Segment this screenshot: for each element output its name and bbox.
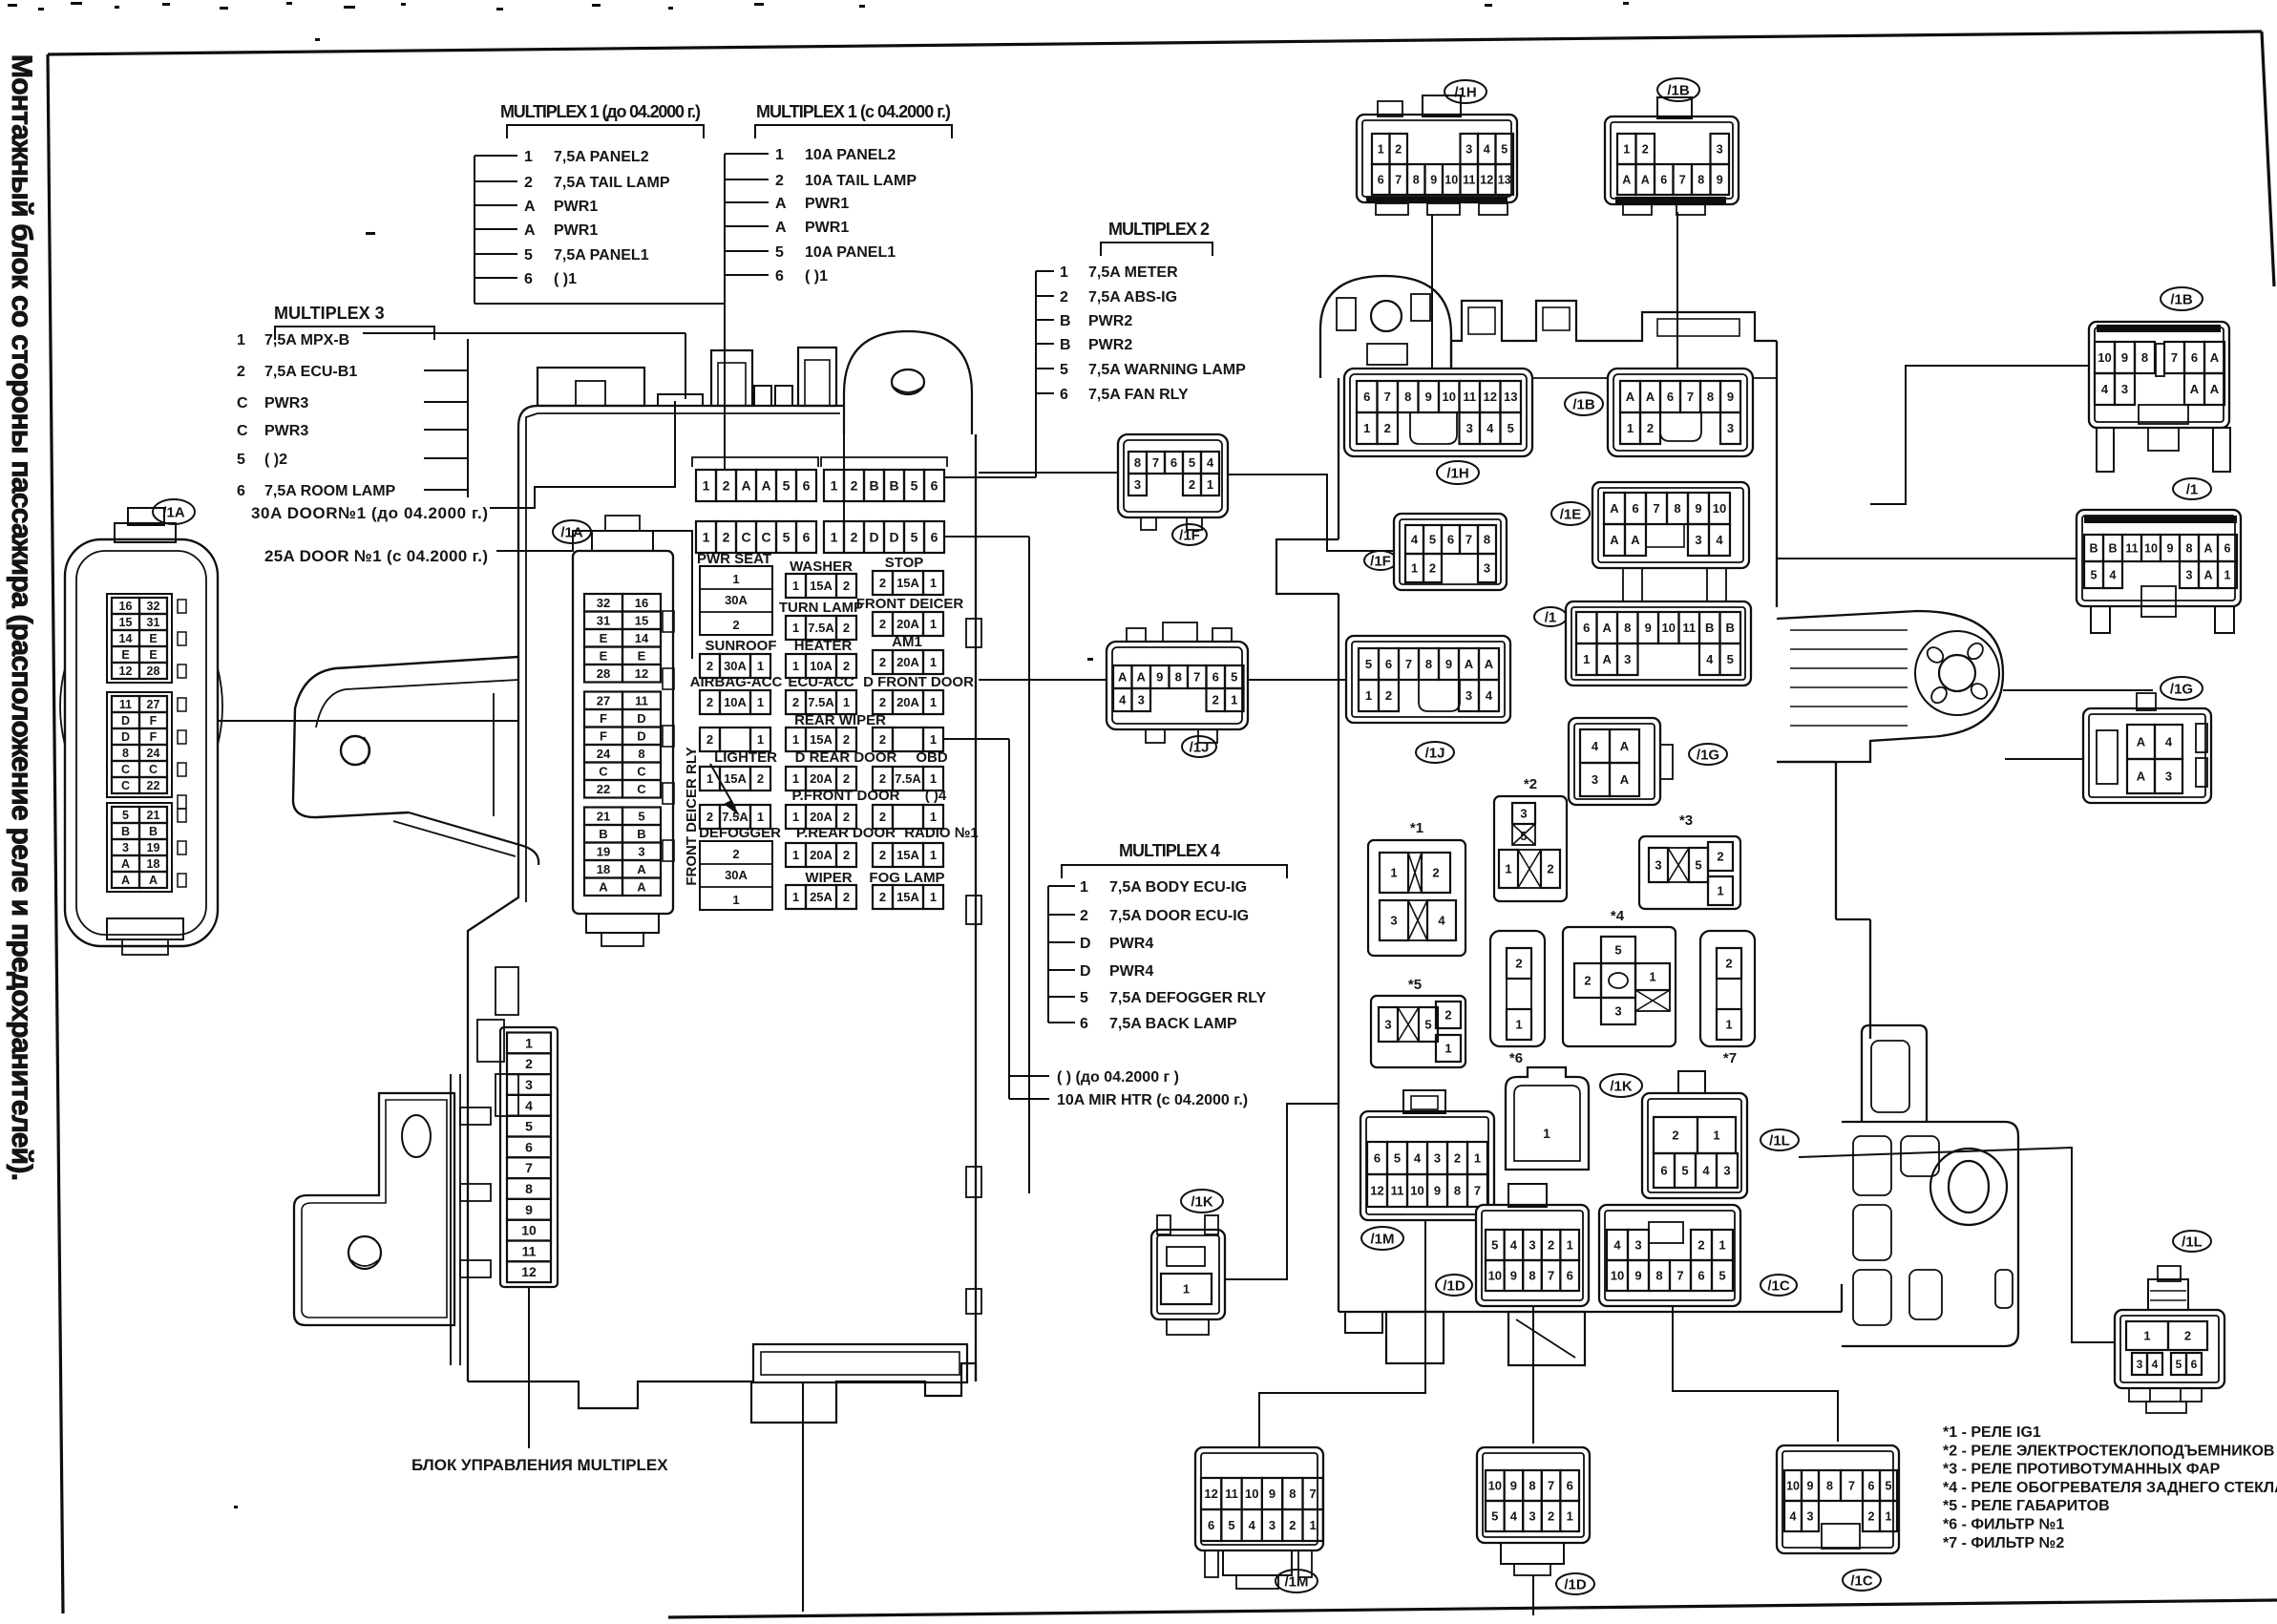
svg-text:7: 7	[1653, 501, 1659, 516]
svg-text:D: D	[637, 728, 645, 743]
svg-text:4: 4	[1510, 1238, 1518, 1253]
svg-text:2: 2	[879, 732, 886, 747]
svg-text:18: 18	[147, 857, 160, 871]
svg-text:БЛОК УПРАВЛЕНИЯ MULTIPLEX: БЛОК УПРАВЛЕНИЯ MULTIPLEX	[411, 1456, 668, 1474]
svg-text:2: 2	[1717, 850, 1723, 864]
svg-text:3: 3	[1614, 1004, 1621, 1019]
svg-text:7: 7	[1384, 390, 1391, 404]
svg-text:2: 2	[879, 655, 886, 669]
svg-text:7: 7	[1465, 533, 1472, 547]
svg-text:8: 8	[2186, 542, 2193, 556]
svg-text:/1A: /1A	[560, 524, 583, 540]
svg-text:8: 8	[1134, 455, 1141, 470]
svg-text:2: 2	[1289, 1518, 1296, 1532]
svg-text:20A: 20A	[810, 810, 833, 824]
svg-text:9: 9	[1717, 174, 1723, 187]
svg-text:/1H: /1H	[1454, 84, 1476, 100]
svg-text:RADIO №1: RADIO №1	[904, 825, 979, 841]
svg-text:5: 5	[1681, 1164, 1688, 1178]
svg-text:8: 8	[1707, 390, 1714, 404]
svg-text:1: 1	[831, 478, 838, 494]
svg-text:1: 1	[1718, 1238, 1725, 1253]
svg-text:8: 8	[1454, 1184, 1461, 1198]
svg-text:2: 2	[843, 659, 850, 673]
svg-text:10: 10	[1488, 1269, 1502, 1283]
svg-text:9: 9	[1645, 621, 1652, 635]
svg-text:1: 1	[930, 617, 937, 631]
svg-text:12: 12	[635, 666, 648, 681]
svg-text:1: 1	[831, 530, 838, 545]
svg-text:7,5A DEFOGGER RLY: 7,5A DEFOGGER RLY	[1109, 990, 1267, 1006]
svg-text:A: A	[1631, 533, 1640, 547]
svg-text:E: E	[121, 648, 129, 662]
svg-text:PWR1: PWR1	[805, 220, 849, 236]
svg-text:8: 8	[638, 747, 644, 761]
svg-text:2: 2	[723, 478, 730, 494]
svg-text:A: A	[2190, 382, 2200, 396]
svg-text:A: A	[1620, 772, 1630, 787]
svg-text:5: 5	[783, 478, 791, 494]
svg-text:20A: 20A	[810, 848, 833, 862]
svg-text:7,5A PANEL1: 7,5A PANEL1	[554, 247, 649, 264]
svg-text:4: 4	[1510, 1509, 1518, 1524]
svg-text:D: D	[121, 730, 130, 744]
svg-text:/1M: /1M	[1370, 1231, 1394, 1247]
svg-text:4: 4	[1119, 693, 1127, 707]
svg-text:7,5A MPX-B: 7,5A MPX-B	[264, 332, 349, 348]
svg-text:2: 2	[1060, 289, 1068, 306]
svg-text:A: A	[599, 879, 608, 894]
svg-text:10: 10	[1662, 621, 1676, 635]
svg-text:1: 1	[792, 771, 799, 786]
svg-text:11: 11	[119, 698, 132, 711]
svg-text:15A: 15A	[724, 771, 747, 786]
svg-text:/1M: /1M	[1284, 1573, 1308, 1590]
svg-text:5: 5	[1424, 1018, 1431, 1032]
svg-text:10: 10	[1444, 174, 1458, 187]
svg-text:P.REAR DOOR: P.REAR DOOR	[796, 825, 896, 841]
svg-text:1: 1	[525, 1035, 533, 1050]
svg-text:10: 10	[2144, 542, 2158, 556]
svg-text:A: A	[1620, 739, 1630, 753]
svg-text:21: 21	[147, 809, 160, 822]
svg-text:28: 28	[147, 664, 160, 678]
svg-text:/1E: /1E	[1560, 506, 1582, 522]
svg-text:/1L: /1L	[1769, 1132, 1790, 1149]
svg-text:D: D	[1080, 963, 1091, 980]
svg-text:14: 14	[635, 631, 649, 645]
svg-text:20A: 20A	[810, 771, 833, 786]
svg-text:2: 2	[879, 695, 886, 709]
svg-text:E: E	[600, 631, 608, 645]
svg-text:9: 9	[1156, 670, 1163, 685]
svg-text:15A: 15A	[896, 848, 919, 862]
svg-text:1: 1	[1183, 1282, 1190, 1297]
svg-text:2: 2	[525, 1056, 533, 1071]
svg-text:8: 8	[1655, 1269, 1662, 1283]
svg-text:7: 7	[1687, 390, 1694, 404]
svg-text:25A: 25A	[810, 890, 833, 904]
svg-text:32: 32	[147, 600, 160, 613]
svg-text:2: 2	[1384, 421, 1391, 435]
svg-text:5: 5	[1429, 533, 1436, 547]
svg-text:*7: *7	[1723, 1050, 1737, 1066]
svg-text:/1A: /1A	[162, 504, 185, 520]
svg-text:3: 3	[2121, 382, 2128, 396]
svg-text:/1F: /1F	[1370, 553, 1391, 569]
svg-text:6: 6	[803, 530, 811, 545]
svg-text:1: 1	[792, 659, 799, 673]
svg-text:5: 5	[1060, 362, 1068, 378]
svg-text:9: 9	[1695, 501, 1701, 516]
svg-text:8: 8	[2141, 350, 2148, 365]
svg-text:32: 32	[597, 596, 610, 610]
svg-text:1: 1	[706, 771, 713, 786]
svg-text:A: A	[2203, 569, 2212, 582]
svg-text:7: 7	[1474, 1184, 1481, 1198]
svg-text:3: 3	[1134, 477, 1141, 492]
svg-text:6: 6	[1378, 174, 1384, 187]
svg-text:1: 1	[792, 732, 799, 747]
svg-text:1: 1	[1060, 264, 1068, 281]
svg-text:1: 1	[757, 732, 764, 747]
svg-text:DEFOGGER: DEFOGGER	[699, 825, 781, 841]
svg-text:6: 6	[1697, 1269, 1704, 1283]
svg-text:28: 28	[597, 666, 610, 681]
svg-text:REAR WIPER: REAR WIPER	[794, 712, 886, 728]
svg-text:D REAR DOOR: D REAR DOOR	[795, 749, 897, 766]
svg-text:C: C	[121, 779, 130, 792]
svg-text:*5 - РЕЛЕ ГАБАРИТОВ: *5 - РЕЛЕ ГАБАРИТОВ	[1943, 1498, 2110, 1514]
svg-text:1: 1	[1378, 143, 1384, 157]
svg-text:/1K: /1K	[1191, 1193, 1213, 1210]
svg-text:7,5A ROOM LAMP: 7,5A ROOM LAMP	[264, 483, 396, 499]
svg-text:16: 16	[119, 600, 133, 613]
svg-text:4: 4	[1592, 739, 1599, 753]
svg-text:7: 7	[1395, 174, 1402, 187]
svg-text:2: 2	[843, 579, 850, 593]
svg-text:2: 2	[1189, 477, 1195, 492]
svg-text:9: 9	[1425, 390, 1432, 404]
svg-text:1: 1	[2224, 569, 2231, 582]
svg-text:1: 1	[792, 810, 799, 824]
svg-text:*7 - ФИЛЬТР №2: *7 - ФИЛЬТР №2	[1943, 1535, 2064, 1551]
svg-text:6: 6	[2191, 1358, 2198, 1371]
svg-text:4: 4	[1706, 652, 1714, 666]
svg-text:2: 2	[1212, 693, 1219, 707]
svg-text:*4: *4	[1611, 908, 1625, 924]
svg-text:B: B	[2089, 542, 2098, 556]
svg-text:7: 7	[1548, 1479, 1554, 1493]
svg-text:2: 2	[2184, 1329, 2191, 1343]
svg-text:B: B	[1060, 337, 1071, 353]
svg-text:10: 10	[1488, 1479, 1502, 1493]
svg-text:6: 6	[1363, 390, 1370, 404]
svg-text:3: 3	[2165, 770, 2172, 784]
svg-text:*2: *2	[1524, 776, 1537, 792]
svg-text:12: 12	[1204, 1487, 1217, 1501]
svg-text:8: 8	[1289, 1487, 1296, 1501]
svg-text:2: 2	[851, 530, 858, 545]
svg-text:PWR3: PWR3	[264, 423, 308, 439]
svg-text:E: E	[149, 632, 157, 645]
svg-text:B: B	[637, 827, 645, 841]
svg-text:/1D: /1D	[1443, 1277, 1465, 1294]
svg-text:1: 1	[1623, 143, 1630, 157]
svg-text:1: 1	[1583, 652, 1590, 666]
svg-text:4: 4	[1790, 1510, 1797, 1524]
svg-text:5: 5	[911, 530, 918, 545]
svg-text:5: 5	[1080, 990, 1088, 1006]
svg-text:1: 1	[757, 659, 764, 673]
svg-text:C: C	[121, 763, 130, 776]
svg-text:31: 31	[147, 616, 160, 629]
svg-text:1: 1	[1444, 1042, 1451, 1056]
svg-text:1: 1	[1080, 879, 1088, 896]
svg-text:9: 9	[1434, 1184, 1441, 1198]
svg-text:B: B	[889, 478, 898, 494]
svg-text:22: 22	[147, 779, 160, 792]
svg-text:1: 1	[703, 530, 710, 545]
svg-text:1: 1	[1725, 1018, 1732, 1032]
svg-text:/1F: /1F	[1179, 527, 1200, 543]
svg-text:4: 4	[1249, 1518, 1256, 1532]
svg-text:*6: *6	[1509, 1050, 1523, 1066]
svg-text:5: 5	[1886, 1480, 1892, 1493]
svg-text:A: A	[1610, 501, 1619, 516]
svg-text:30A DOOR№1 (до 04.2000 г.): 30A DOOR№1 (до 04.2000 г.)	[251, 504, 488, 522]
svg-text:7,5A PANEL2: 7,5A PANEL2	[554, 149, 649, 165]
svg-text:F: F	[600, 728, 607, 743]
svg-text:1: 1	[930, 732, 937, 747]
svg-text:/1: /1	[1545, 609, 1557, 625]
svg-text:1: 1	[1515, 1018, 1522, 1032]
svg-text:MULTIPLEX 4: MULTIPLEX 4	[1119, 841, 1220, 860]
svg-text:2: 2	[1548, 1238, 1554, 1253]
svg-text:15A: 15A	[896, 576, 919, 590]
svg-text:5: 5	[775, 244, 784, 261]
svg-text:6: 6	[1212, 670, 1219, 685]
svg-text:6: 6	[1660, 174, 1667, 187]
svg-text:A: A	[2210, 382, 2220, 396]
svg-text:1: 1	[732, 893, 739, 907]
svg-text:3: 3	[1655, 858, 1661, 873]
svg-text:PWR1: PWR1	[805, 196, 849, 212]
svg-text:3: 3	[1807, 1510, 1814, 1524]
svg-text:C: C	[637, 764, 646, 778]
svg-text:3: 3	[122, 841, 129, 854]
svg-text:1: 1	[703, 478, 710, 494]
svg-text:2: 2	[1429, 561, 1436, 576]
svg-text:*4 - РЕЛЕ ОБОГРЕВАТЕЛЯ ЗАДНЕГО: *4 - РЕЛЕ ОБОГРЕВАТЕЛЯ ЗАДНЕГО СТЕКЛА	[1943, 1480, 2277, 1496]
svg-text:6: 6	[1060, 387, 1068, 403]
svg-text:5: 5	[1501, 143, 1507, 157]
svg-text:D: D	[869, 530, 878, 545]
svg-text:C: C	[237, 423, 248, 439]
svg-text:2: 2	[1515, 957, 1522, 971]
svg-text:7,5A DOOR ECU-IG: 7,5A DOOR ECU-IG	[1109, 908, 1249, 924]
svg-text:7: 7	[2171, 350, 2178, 365]
svg-text:7.5A: 7.5A	[808, 621, 834, 635]
svg-text:PWR SEAT: PWR SEAT	[697, 551, 771, 567]
svg-text:D: D	[1080, 936, 1091, 952]
svg-text:5: 5	[638, 809, 644, 823]
svg-text:AM1: AM1	[892, 634, 922, 650]
svg-text:D FRONT DOOR: D FRONT DOOR	[863, 674, 974, 690]
svg-text:5: 5	[524, 247, 533, 264]
svg-text:2: 2	[1868, 1510, 1875, 1524]
svg-text:6: 6	[237, 483, 245, 499]
svg-text:5: 5	[783, 530, 791, 545]
svg-text:A: A	[524, 199, 536, 215]
svg-text:5: 5	[1695, 858, 1701, 873]
svg-text:( )2: ( )2	[264, 452, 287, 468]
svg-text:3: 3	[638, 844, 644, 858]
svg-text:8: 8	[1529, 1269, 1535, 1283]
svg-text:30A: 30A	[725, 593, 748, 607]
svg-text:3: 3	[1269, 1518, 1276, 1532]
svg-text:1: 1	[792, 579, 799, 593]
svg-text:3: 3	[2137, 1358, 2143, 1371]
svg-text:4: 4	[1613, 1238, 1621, 1253]
svg-text:2: 2	[843, 890, 850, 904]
svg-text:22: 22	[597, 782, 610, 796]
svg-text:24: 24	[597, 747, 611, 761]
svg-text:25A DOOR №1 (с 04.2000 г.): 25A DOOR №1 (с 04.2000 г.)	[264, 547, 488, 565]
svg-text:6: 6	[1632, 501, 1638, 516]
svg-text:6: 6	[931, 478, 938, 494]
svg-text:2: 2	[843, 771, 850, 786]
svg-text:B: B	[1726, 621, 1735, 635]
svg-text:*5: *5	[1408, 977, 1422, 993]
svg-text:6: 6	[524, 271, 533, 287]
svg-text:6: 6	[1667, 390, 1674, 404]
svg-text:8: 8	[1826, 1480, 1833, 1493]
svg-text:MULTIPLEX 1 (до 04.2000 г.): MULTIPLEX 1 (до 04.2000 г.)	[500, 102, 701, 121]
svg-text:1: 1	[1390, 866, 1397, 880]
svg-text:FRONT DEICER RLY: FRONT DEICER RLY	[684, 747, 700, 885]
svg-text:12: 12	[119, 664, 133, 678]
svg-text:MULTIPLEX 3: MULTIPLEX 3	[274, 304, 385, 323]
svg-text:10: 10	[521, 1223, 537, 1238]
svg-text:3: 3	[1723, 1164, 1730, 1178]
svg-text:2: 2	[1444, 1008, 1451, 1023]
svg-text:10A TAIL LAMP: 10A TAIL LAMP	[805, 173, 917, 189]
svg-text:1: 1	[1231, 693, 1237, 707]
svg-text:7,5A FAN RLY: 7,5A FAN RLY	[1088, 387, 1189, 403]
svg-text:13: 13	[1498, 174, 1511, 187]
svg-text:A: A	[1465, 657, 1474, 671]
svg-text:7: 7	[525, 1160, 533, 1175]
svg-text:FOG LAMP: FOG LAMP	[869, 870, 944, 886]
svg-text:4: 4	[1716, 533, 1723, 547]
svg-text:OBD: OBD	[916, 749, 948, 766]
svg-text:2: 2	[706, 695, 713, 709]
svg-text:2: 2	[706, 810, 713, 824]
svg-text:7,5A METER: 7,5A METER	[1088, 264, 1178, 281]
svg-text:2: 2	[706, 732, 713, 747]
svg-text:B: B	[869, 478, 878, 494]
svg-text:15: 15	[119, 616, 133, 629]
svg-text:7.5A: 7.5A	[808, 695, 834, 709]
svg-text:A: A	[775, 220, 787, 236]
svg-text:STOP: STOP	[885, 555, 924, 571]
svg-text:12: 12	[1370, 1184, 1383, 1198]
svg-text:A: A	[1137, 670, 1147, 685]
svg-text:3: 3	[1592, 772, 1598, 787]
svg-text:/1L: /1L	[2182, 1234, 2203, 1250]
svg-text:2: 2	[1385, 688, 1392, 703]
svg-text:2: 2	[879, 576, 886, 590]
svg-text:7: 7	[1548, 1269, 1554, 1283]
svg-text:FRONT DEICER: FRONT DEICER	[856, 596, 964, 612]
svg-text:E: E	[600, 648, 608, 663]
svg-text:MULTIPLEX 2: MULTIPLEX 2	[1108, 220, 1210, 239]
svg-text:A: A	[1626, 390, 1635, 404]
svg-text:1: 1	[732, 572, 739, 586]
svg-text:6: 6	[1170, 455, 1177, 470]
svg-text:/1J: /1J	[1190, 739, 1210, 755]
svg-text:2: 2	[1672, 1128, 1678, 1143]
svg-text:11: 11	[635, 693, 648, 707]
svg-text:3: 3	[1390, 914, 1397, 928]
svg-text:6: 6	[1583, 621, 1590, 635]
svg-text:5: 5	[1718, 1269, 1725, 1283]
svg-text:2: 2	[843, 810, 850, 824]
svg-text:A: A	[1603, 621, 1613, 635]
svg-text:7: 7	[1405, 657, 1412, 671]
svg-text:3: 3	[1695, 533, 1701, 547]
svg-text:2: 2	[1647, 421, 1654, 435]
svg-text:4: 4	[1438, 914, 1445, 928]
svg-text:5: 5	[2091, 569, 2098, 582]
svg-text:1: 1	[1207, 477, 1213, 492]
svg-text:2: 2	[1432, 866, 1439, 880]
svg-text:6: 6	[1374, 1151, 1381, 1166]
svg-text:1: 1	[930, 810, 937, 824]
svg-text:4: 4	[1207, 455, 1214, 470]
svg-text:7: 7	[1848, 1480, 1855, 1493]
svg-text:*1: *1	[1410, 820, 1423, 836]
svg-text:2: 2	[879, 890, 886, 904]
svg-text:3: 3	[525, 1077, 533, 1092]
svg-text:5: 5	[1365, 657, 1372, 671]
svg-text:10: 10	[1611, 1269, 1624, 1283]
svg-text:9: 9	[1727, 390, 1734, 404]
svg-text:9: 9	[525, 1202, 533, 1217]
svg-text:A: A	[1622, 174, 1631, 187]
svg-text:24: 24	[147, 747, 160, 760]
svg-text:A: A	[1485, 657, 1494, 671]
svg-text:4: 4	[1486, 421, 1494, 435]
svg-text:2: 2	[237, 364, 245, 380]
svg-text:6: 6	[1567, 1479, 1573, 1493]
svg-text:1: 1	[775, 147, 784, 163]
svg-text:*3 - РЕЛЕ ПРОТИВОТУМАННЫХ ФАР: *3 - РЕЛЕ ПРОТИВОТУМАННЫХ ФАР	[1943, 1462, 2221, 1478]
svg-text:4: 4	[1486, 688, 1493, 703]
svg-text:2: 2	[775, 173, 784, 189]
svg-text:1: 1	[930, 890, 937, 904]
svg-text:1: 1	[930, 695, 937, 709]
svg-text:5: 5	[122, 809, 129, 822]
svg-text:/1G: /1G	[2170, 681, 2193, 697]
svg-text:1: 1	[843, 695, 850, 709]
svg-text:11: 11	[1463, 174, 1475, 187]
svg-text:PWR4: PWR4	[1109, 963, 1153, 980]
svg-text:LIGHTER: LIGHTER	[714, 749, 777, 766]
svg-text:1: 1	[757, 810, 764, 824]
svg-text:11: 11	[2125, 542, 2138, 556]
